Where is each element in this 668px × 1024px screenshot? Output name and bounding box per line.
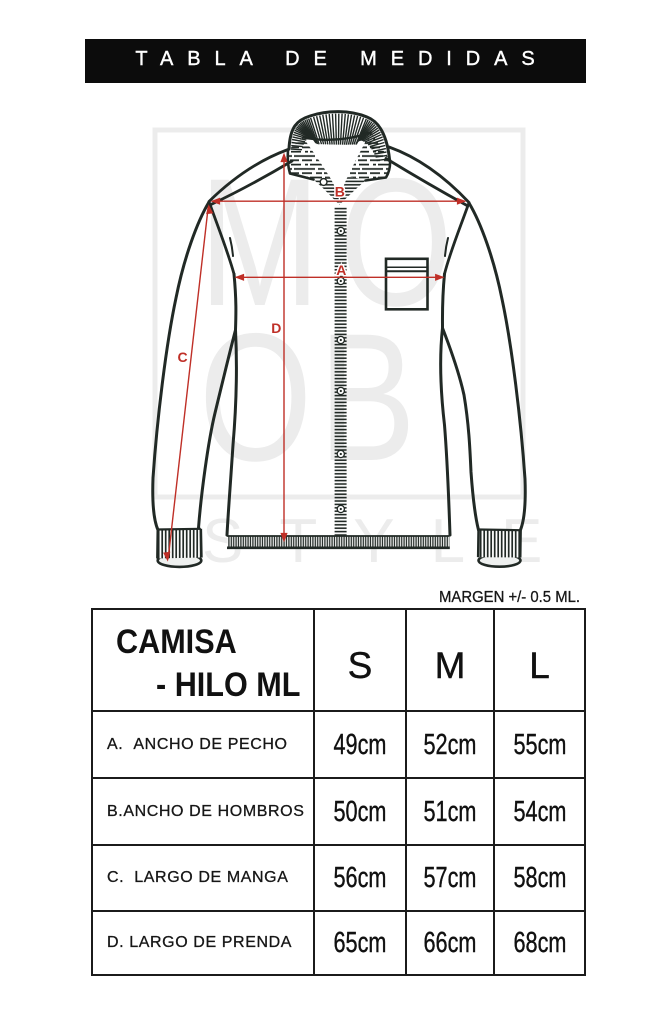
svg-text:A: A [336,262,346,278]
svg-text:C: C [178,349,188,365]
svg-text:D: D [271,320,281,336]
svg-text:B: B [335,184,345,200]
